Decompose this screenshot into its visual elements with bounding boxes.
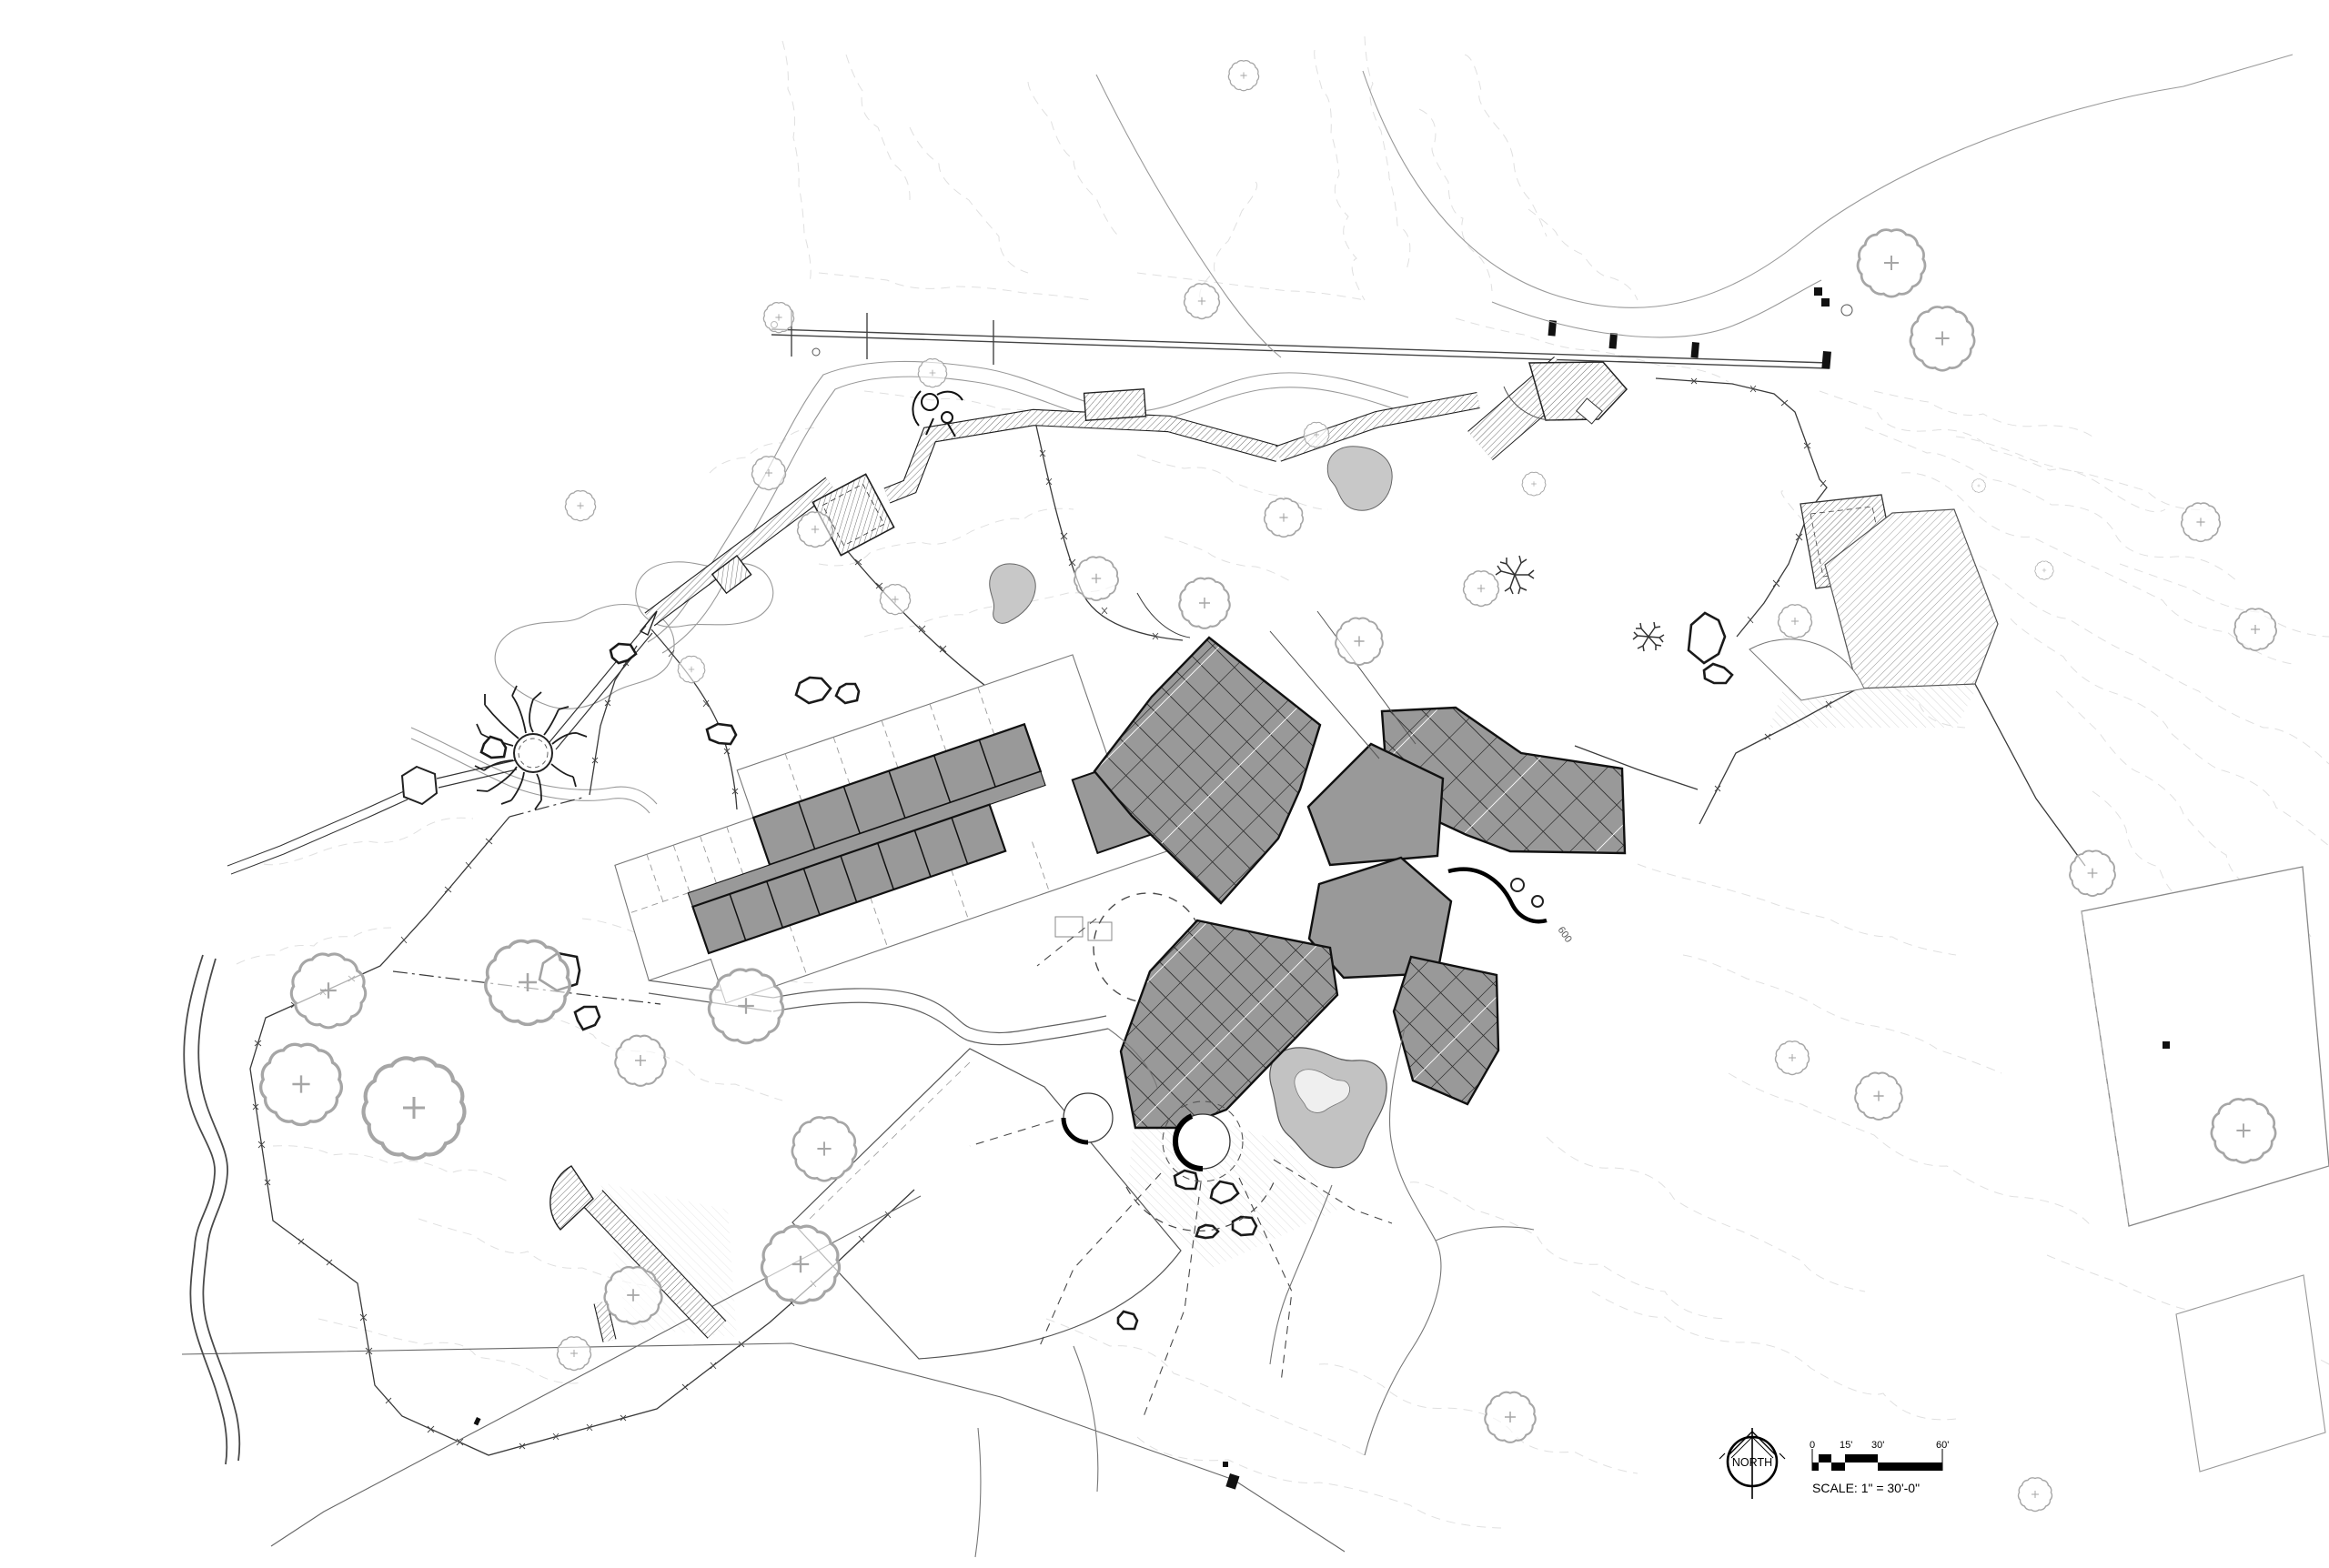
svg-text:60': 60' — [1936, 1440, 1949, 1451]
svg-text:SCALE: 1" = 30'-0": SCALE: 1" = 30'-0" — [1812, 1481, 1920, 1495]
svg-text:NORTH: NORTH — [1732, 1456, 1772, 1469]
svg-text:15': 15' — [1840, 1440, 1852, 1451]
svg-text:0: 0 — [1810, 1440, 1815, 1451]
svg-text:30': 30' — [1871, 1440, 1884, 1451]
